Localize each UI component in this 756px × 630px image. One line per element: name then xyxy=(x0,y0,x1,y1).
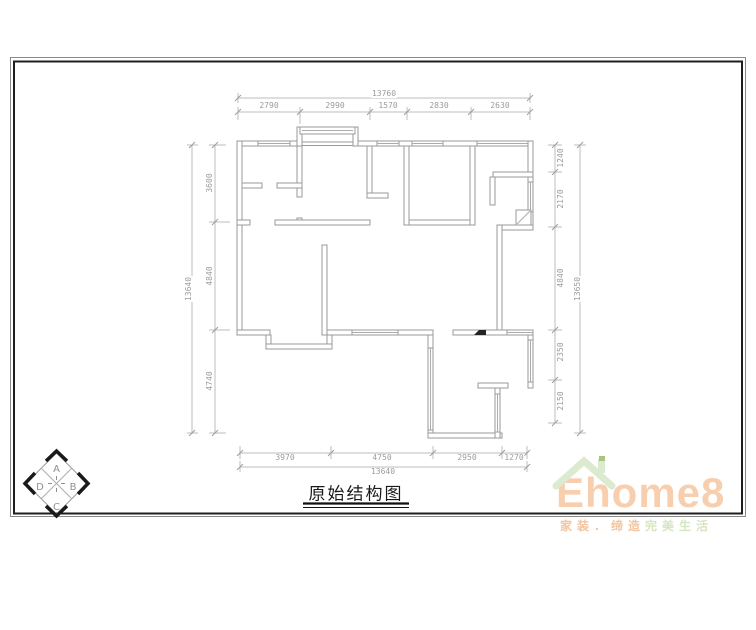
dim-top-total: 13760 xyxy=(371,90,397,98)
dim-right-total: 13650 xyxy=(574,276,582,302)
dim-right-seg-1: 1240 xyxy=(557,147,565,168)
dim-left-seg-1: 3600 xyxy=(206,172,214,193)
dim-right-seg-4: 2350 xyxy=(557,341,565,362)
dim-top-seg-2: 2990 xyxy=(324,102,345,110)
dim-top-seg-1: 2790 xyxy=(258,102,279,110)
drawing-title: 原始结构图 xyxy=(309,480,404,505)
dim-bottom-seg-3: 2950 xyxy=(456,454,477,462)
dim-right-seg-3: 4840 xyxy=(557,267,565,288)
dim-left-total: 13640 xyxy=(185,276,193,302)
dimension-labels: 13760 2790 2990 1570 2830 2630 3970 4750… xyxy=(0,0,756,630)
dim-right-seg-5: 2150 xyxy=(557,390,565,411)
dim-left-seg-3: 4740 xyxy=(206,370,214,391)
dim-left-seg-2: 4840 xyxy=(206,265,214,286)
dim-bottom-seg-4: 1270 xyxy=(503,454,524,462)
dim-top-seg-3: 1570 xyxy=(377,102,398,110)
dim-top-seg-5: 2630 xyxy=(489,102,510,110)
dim-right-seg-2: 2170 xyxy=(557,188,565,209)
dim-bottom-total: 13640 xyxy=(370,468,396,476)
dim-bottom-seg-1: 3970 xyxy=(274,454,295,462)
dim-bottom-seg-2: 4750 xyxy=(371,454,392,462)
drawing-sheet: { "sheet": { "title": "原始结构图" }, "dimens… xyxy=(0,0,756,630)
dim-top-seg-4: 2830 xyxy=(428,102,449,110)
